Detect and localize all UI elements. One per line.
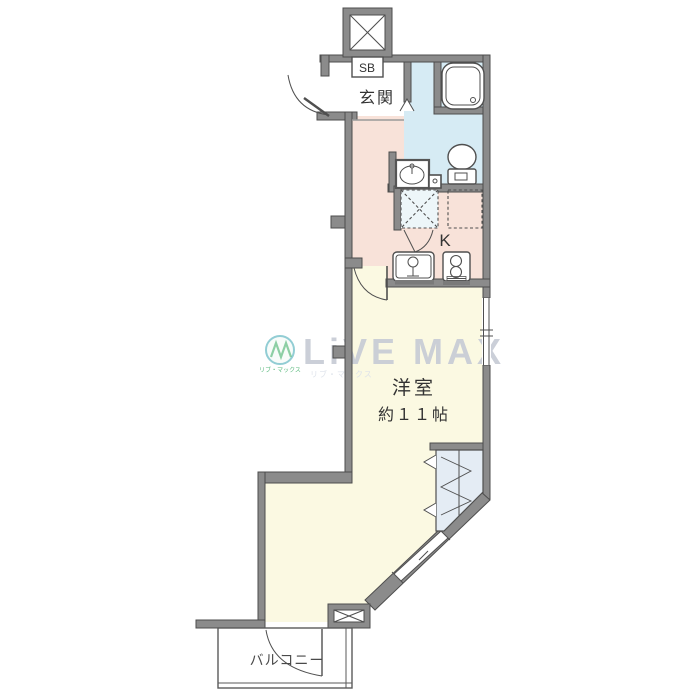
floorplan-drawing: リブ・マックス LiVE MAX リブ・マックス [0,0,700,700]
wall-washer-left [394,186,401,230]
watermark: リブ・マックス LiVE MAX リブ・マックス [259,331,505,379]
balcony-label: バルコニー [250,652,325,668]
wall-pilaster-lower [333,346,345,358]
stove-icon [443,252,470,285]
wall-tub-vertical [434,62,441,114]
main-room-size-label: 約１１帖 [378,406,450,424]
wall-left-main [345,112,352,483]
shoe-box-label: SB [359,61,375,75]
wall-bottom [196,620,265,628]
toilet-icon [448,145,476,185]
floorplan-page: リブ・マックス LiVE MAX リブ・マックス [0,0,700,700]
wall-closet-top [430,443,483,450]
wall-right-lower [483,365,490,499]
kitchen-label: K [439,231,451,250]
entrance-door-arc [288,75,329,115]
entrance-label: 玄関 [359,89,395,107]
wall-bath-divider [404,62,411,102]
logo-sub-text: リブ・マックス [259,366,301,374]
washbasin-icon [396,160,429,188]
washing-machine-space [401,190,438,228]
pipe-shaft [343,8,392,57]
wall-step [258,472,352,483]
meter-box [328,604,370,628]
door-stop-box [429,175,441,188]
bathtub-icon [442,63,484,109]
brand-logo-icon: リブ・マックス [259,336,301,374]
watermark-sub-text: リブ・マックス [310,369,373,379]
wall-left-lower [258,472,265,628]
wall-entrance-stub [321,55,329,76]
wall-kitchen-door-block [345,258,362,268]
main-room-label: 洋室 [392,377,436,399]
wall-pilaster-upper [331,216,345,228]
kitchen-sink-icon [393,252,434,285]
